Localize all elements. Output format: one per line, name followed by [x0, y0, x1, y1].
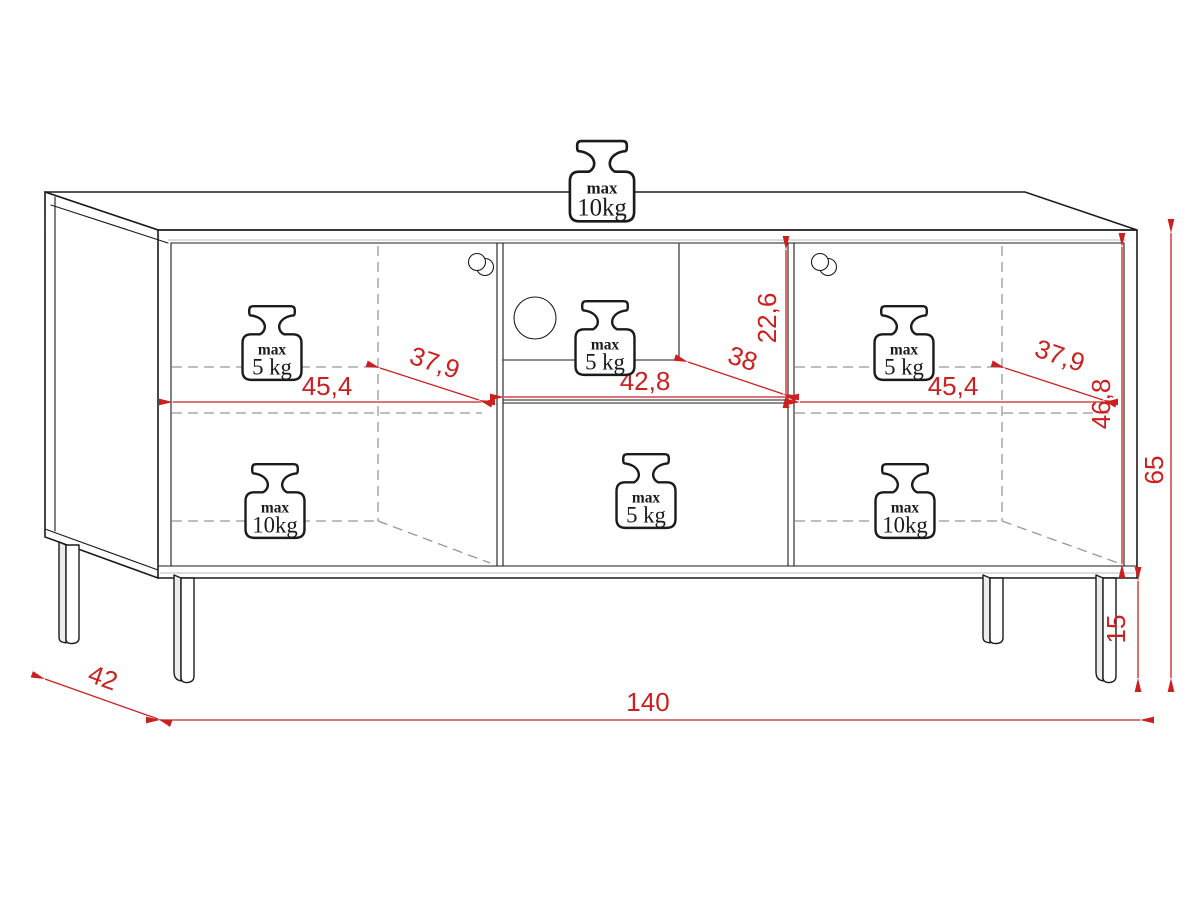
left-door-knob: [469, 254, 494, 276]
dim-left-compartment-width: 45,4: [302, 371, 353, 401]
dim-total-depth: 42: [84, 659, 121, 697]
weight-value-label: 10kg: [882, 513, 928, 538]
right-compartment-hidden-edges: [795, 246, 1121, 564]
weight-icon-right-bottom-10kg: max 10kg: [876, 464, 935, 538]
dim-leg-height: 15: [1101, 615, 1131, 644]
cable-hole: [514, 297, 556, 339]
weight-value-label: 5 kg: [585, 350, 625, 375]
dim-interior-height: 46,8: [1086, 379, 1116, 430]
weight-icon-left-bottom-10kg: max 10kg: [246, 464, 305, 538]
weight-icon-right-shelf-5kg: max 5 kg: [875, 306, 934, 380]
right-door-knob: [812, 254, 837, 276]
dim-niche-depth: 38: [724, 340, 761, 377]
weight-value-label: 5 kg: [626, 503, 666, 528]
left-compartment-hidden-edges: [172, 246, 490, 563]
weight-icon-drawer-5kg: max 5 kg: [617, 454, 676, 528]
weight-value-label: 5 kg: [884, 355, 924, 380]
dim-right-compartment-width: 45,4: [928, 371, 979, 401]
diagram-page: 45,4 37,9 42,8 38 22,6 45,4 37,9 46,8 14…: [0, 0, 1200, 900]
weight-icon-niche-5kg: max 5 kg: [576, 301, 635, 375]
back-right-leg: [983, 575, 1003, 644]
dim-total-width: 140: [626, 687, 669, 717]
dim-total-height: 65: [1139, 456, 1169, 485]
dim-right-compartment-depth: 37,9: [1031, 333, 1089, 378]
weight-value-label: 10kg: [577, 195, 627, 222]
dim-niche-height: 22,6: [752, 293, 782, 344]
front-left-leg: [174, 575, 194, 683]
furniture-dimension-diagram: 45,4 37,9 42,8 38 22,6 45,4 37,9 46,8 14…: [0, 0, 1200, 900]
dim-left-compartment-depth: 37,9: [406, 340, 464, 385]
weight-icon-left-shelf-5kg: max 5 kg: [243, 306, 302, 380]
weight-value-label: 5 kg: [252, 355, 292, 380]
left-side-panel: [45, 192, 158, 578]
weight-value-label: 10kg: [252, 513, 298, 538]
legs: [59, 542, 1116, 683]
weight-icon-top-10kg: max 10kg: [570, 141, 634, 221]
back-left-leg: [59, 542, 79, 644]
